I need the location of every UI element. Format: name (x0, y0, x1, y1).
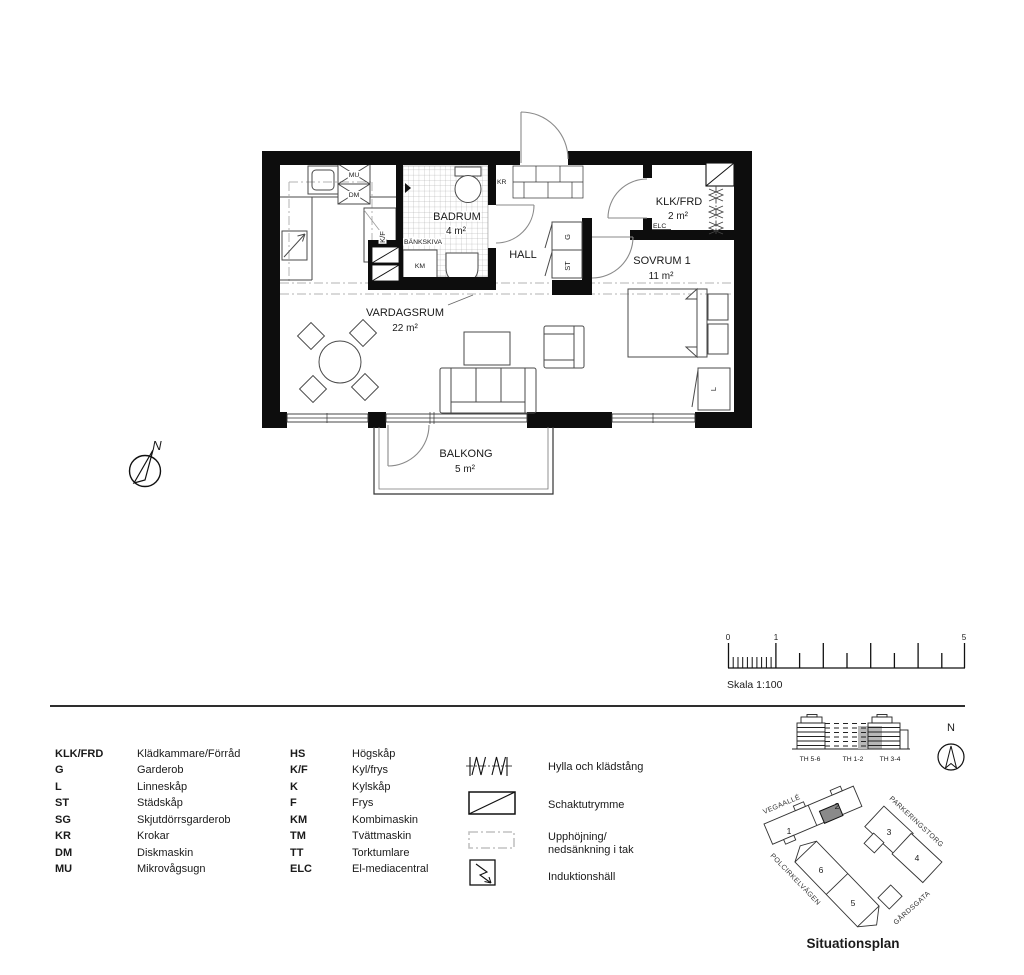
kitchen-sink (308, 166, 338, 194)
site-number-6: 6 (819, 865, 824, 875)
dining-table (319, 341, 361, 383)
legend-abbr: TM (290, 830, 306, 842)
balcony-door-window (386, 412, 527, 424)
legend-abbr: K/F (290, 764, 308, 776)
room-label-sovrum: SOVRUM 1 (633, 255, 690, 267)
elevation-label-th34: TH 3-4 (880, 756, 901, 763)
room-area-klk-frd: 2 m² (668, 211, 689, 222)
site-building-1-2: VEGAALLÉ (758, 771, 864, 848)
legend-name: Garderob (137, 764, 183, 776)
legend-abbr: TT (290, 847, 304, 859)
entry-floor-tiles (513, 166, 583, 198)
legend-abbr: G (55, 764, 64, 776)
room-label-vardagsrum: VARDAGSRUM (366, 307, 444, 319)
legend-name: Städskåp (137, 797, 183, 809)
legend-name: Skjutdörrsgarderob (137, 814, 231, 826)
shaft-symbol-icon (469, 792, 515, 814)
bathroom-door (496, 205, 534, 243)
legend-name: Frys (352, 797, 374, 809)
scale-bar (728, 643, 965, 668)
symbol-label-tak-1: Upphöjning/ (548, 831, 608, 843)
legend-abbr: L (55, 781, 62, 793)
living-room-window (287, 413, 368, 423)
entrance-door (521, 112, 568, 163)
ceiling-symbol-icon (469, 832, 514, 848)
site-building-small (878, 885, 902, 909)
bedroom-door (592, 237, 633, 278)
double-bed (628, 289, 707, 357)
sofa (440, 368, 536, 413)
legend-abbr: KLK/FRD (55, 748, 103, 760)
coffee-table (464, 332, 510, 365)
label-bankskiva: BÄNKSKIVA (404, 238, 442, 246)
legend-name: El-mediacentral (352, 863, 428, 875)
north-arrow: N (130, 438, 163, 487)
legend-name: Mikrovågsugn (137, 863, 205, 875)
legend-abbr: K (290, 781, 298, 793)
legend-name: Kyl/frys (352, 764, 389, 776)
room-area-vardagsrum: 22 m² (392, 323, 418, 334)
elevation-label-th56: TH 5-6 (800, 756, 821, 763)
label-kf: K/F (378, 231, 387, 243)
room-label-klk-frd: KLK/FRD (656, 196, 703, 208)
legend-abbr: KR (55, 830, 71, 842)
site-number-2: 2 (835, 801, 840, 811)
label-mu: MU (349, 172, 360, 179)
compass-needle-icon (946, 746, 957, 768)
legend-abbr: ELC (290, 863, 312, 875)
floorplan-page: BADRUM 4 m² HALL KLK/FRD 2 m² SOVRUM 1 1… (0, 0, 1024, 975)
site-compass: N (938, 722, 964, 770)
legend-name: Linneskåp (137, 781, 187, 793)
room-area-sovrum: 11 m² (649, 271, 674, 282)
label-kr: KR (497, 179, 507, 186)
balcony-door (388, 425, 429, 466)
closet-door (608, 179, 647, 218)
legend-abbr: KM (290, 814, 307, 826)
shelf-clothes-rail (709, 186, 723, 234)
elevation-label-th12: TH 1-2 (843, 756, 864, 763)
legend-symbols: Hylla och klädstång Schaktutrymme Upphöj… (466, 757, 643, 885)
legend-name: Kylskåp (352, 781, 391, 793)
scale-tick-1: 1 (774, 633, 779, 642)
label-dm: DM (349, 192, 360, 199)
legend-column-2: HS Högskåp K/F Kyl/frys K Kylskåp F Frys… (290, 748, 428, 875)
scale-tick-5: 5 (962, 633, 967, 642)
room-label-hall: HALL (509, 249, 537, 261)
legend-abbr: ST (55, 797, 69, 809)
living-room-furniture (298, 320, 584, 413)
toilet (455, 167, 481, 203)
nightstand (708, 324, 728, 354)
legend-abbr: F (290, 797, 297, 809)
legend-name: Krokar (137, 830, 170, 842)
room-area-badrum: 4 m² (446, 226, 467, 237)
label-st: ST (563, 261, 572, 271)
induction-symbol-icon (470, 860, 495, 885)
room-label-badrum: BADRUM (433, 211, 481, 223)
floorplan-drawing: BADRUM 4 m² HALL KLK/FRD 2 m² SOVRUM 1 1… (0, 0, 1024, 975)
scale-label: Skala 1:100 (727, 679, 783, 691)
site-number-3: 3 (887, 827, 892, 837)
site-number-1: 1 (787, 826, 792, 836)
situationsplan: VEGAALLÉ 1 2 3 4 5 6 PARKERINGSTORG POLC… (758, 771, 945, 951)
legend-abbr: MU (55, 863, 72, 875)
legend-name: Tvättmaskin (352, 830, 411, 842)
scale-tick-0: 0 (726, 633, 731, 642)
bedroom-window (612, 413, 695, 423)
building-elevation: TH 5-6 TH 1-2 TH 3-4 (792, 715, 910, 764)
symbol-label-schakt: Schaktutrymme (548, 799, 624, 811)
label-l: L (709, 387, 718, 391)
site-number-4: 4 (915, 853, 920, 863)
compass-letter: N (947, 722, 955, 734)
north-letter: N (152, 438, 162, 453)
legend-abbr: HS (290, 748, 305, 760)
legend-name: Torktumlare (352, 847, 409, 859)
legend-abbr: DM (55, 847, 72, 859)
legend-name: Diskmaskin (137, 847, 193, 859)
symbol-label-hylla: Hylla och klädstång (548, 761, 643, 773)
shelf-rail-symbol-icon (466, 757, 512, 776)
legend-name: Högskåp (352, 748, 395, 760)
legend-column-1: KLK/FRD Klädkammare/Förråd G Garderob L … (55, 748, 240, 875)
elevation-block-th56 (797, 715, 825, 750)
legend-abbr: SG (55, 814, 71, 826)
legend-name: Kombimaskin (352, 814, 418, 826)
label-km: KM (415, 263, 426, 270)
label-g: G (563, 234, 572, 240)
situationsplan-title: Situationsplan (806, 936, 899, 951)
label-leader-line (448, 295, 473, 305)
site-number-5: 5 (851, 898, 856, 908)
label-elc: ELC (653, 223, 666, 230)
balcony (374, 427, 553, 494)
shaft-space (706, 163, 734, 186)
dining-chairs (298, 320, 379, 403)
nightstand (708, 294, 728, 320)
windows (287, 412, 695, 424)
legend-name: Klädkammare/Förråd (137, 748, 240, 760)
induction-hob (282, 231, 307, 260)
armchair (544, 326, 584, 368)
symbol-label-tak-2: nedsänkning i tak (548, 844, 634, 856)
room-area-balkong: 5 m² (455, 464, 476, 475)
symbol-label-induktion: Induktionshäll (548, 871, 615, 883)
room-label-balkong: BALKONG (439, 448, 492, 460)
